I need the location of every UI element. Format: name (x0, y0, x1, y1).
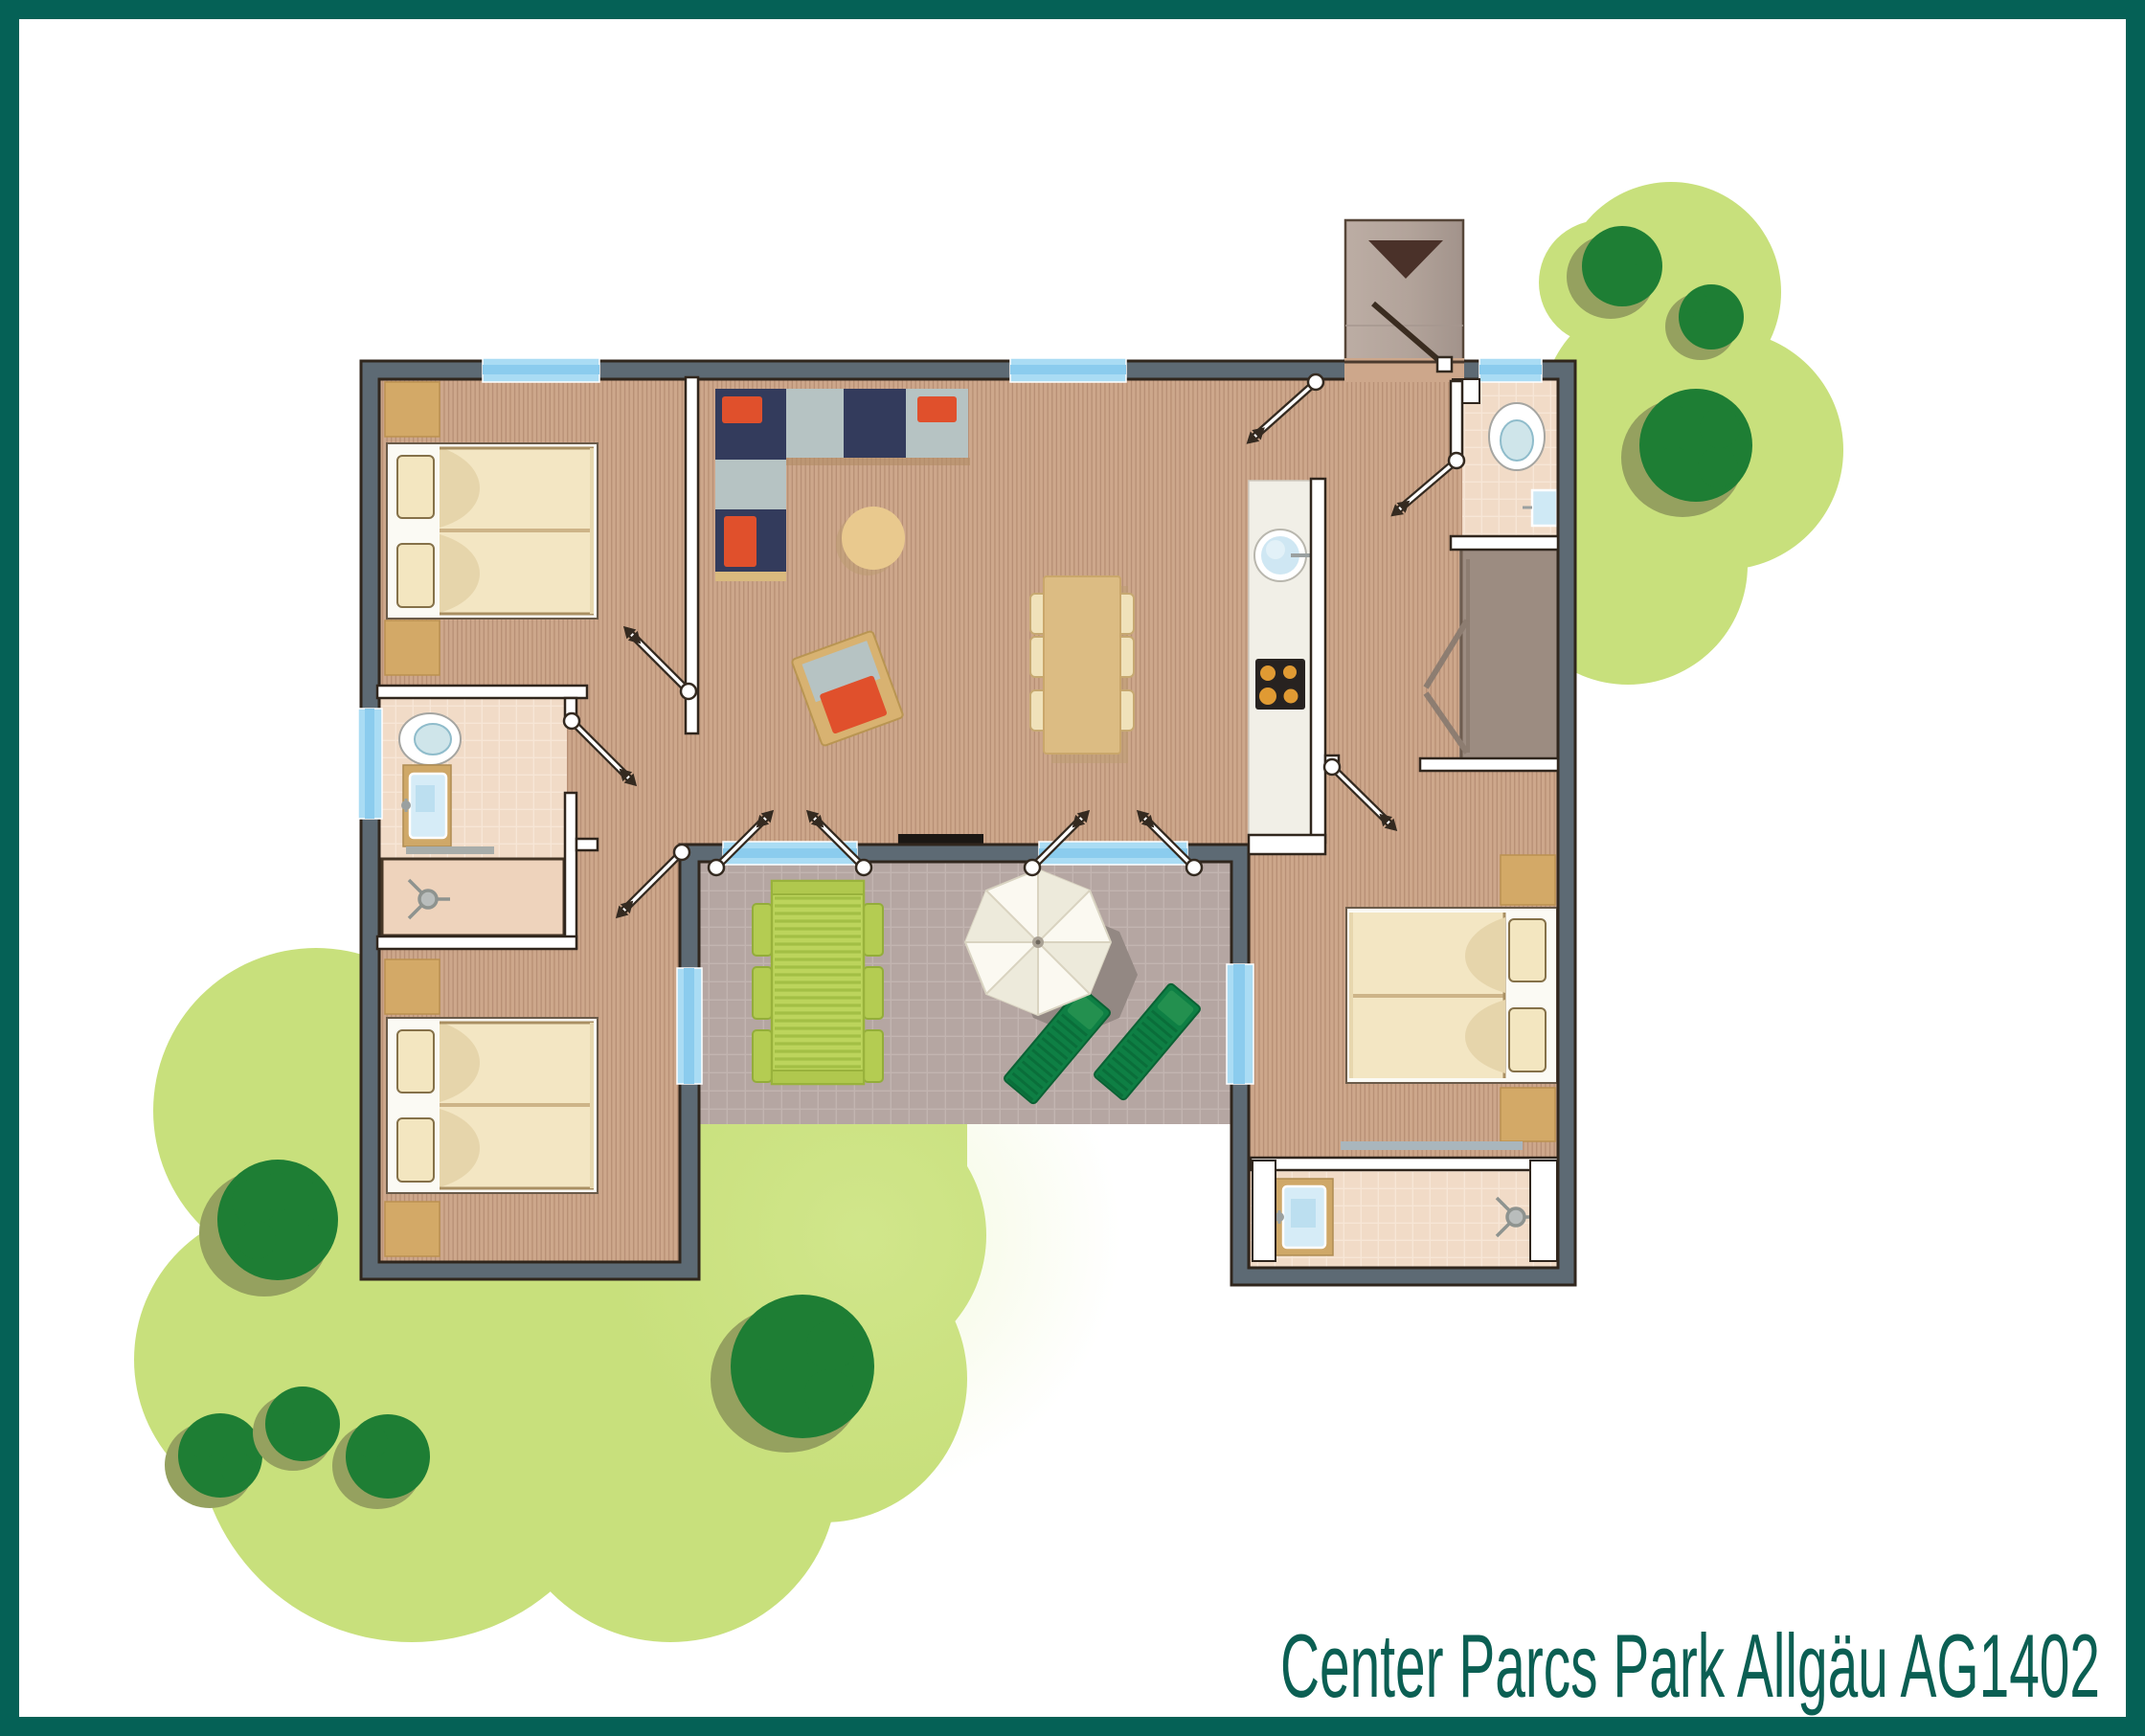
svg-text:Center Parcs Park Allgäu AG140: Center Parcs Park Allgäu AG1402 (1280, 1615, 2100, 1716)
